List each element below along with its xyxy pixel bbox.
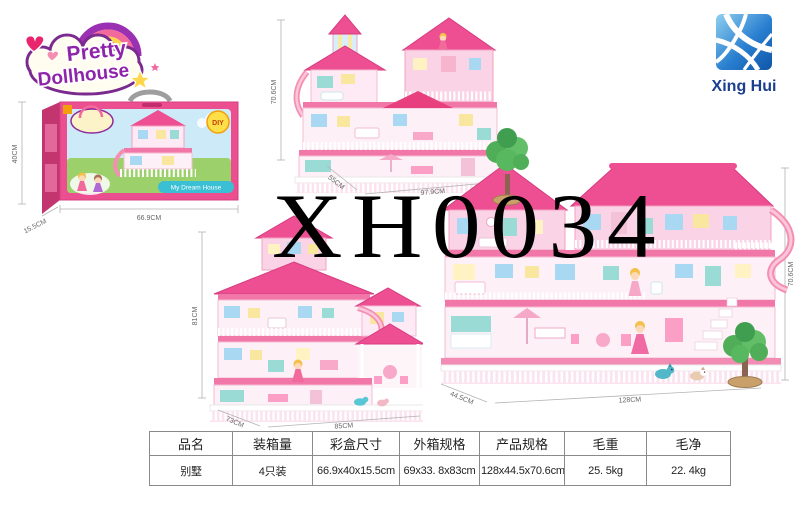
cell-color-box-size: 66.9x40x15.5cm	[313, 456, 400, 486]
cell-gross-weight: 25. 5kg	[565, 456, 647, 486]
cell-carton-size: 69x33. 8x83cm	[400, 456, 480, 486]
pretty-dollhouse-logo: Pretty Dollhouse	[12, 6, 167, 101]
xing-hui-logo: Xing Hui	[700, 12, 788, 98]
box-art: DIY My Dream House	[42, 92, 238, 214]
diy-badge-label: DIY	[212, 120, 224, 127]
cell-product-size: 128x44.5x70.6cm	[480, 456, 565, 486]
house-right-height-label: 70.6CM	[788, 262, 795, 287]
house-right-width-label: 128CM	[618, 396, 641, 404]
box-width-label: 66.9CM	[137, 215, 162, 222]
header-carton-size: 外箱规格	[400, 432, 480, 456]
box-tagline: My Dream House	[171, 185, 222, 192]
box-height-dimension	[18, 102, 26, 204]
spec-table-data-row: 别墅 4只装 66.9x40x15.5cm 69x33. 8x83cm 128x…	[150, 456, 731, 486]
header-net-weight: 毛净	[647, 432, 731, 456]
house-right-depth-label: 44.5CM	[449, 391, 475, 407]
house-top-height-label: 70.6CM	[271, 80, 278, 105]
house-right-bottom-dimensions	[441, 384, 761, 403]
header-color-box-size: 彩盒尺寸	[313, 432, 400, 456]
spec-table: 品名 装箱量 彩盒尺寸 外箱规格 产品规格 毛重 毛净 别墅 4只装 66.9x…	[149, 431, 731, 486]
header-gross-weight: 毛重	[565, 432, 647, 456]
company-name: Xing Hui	[712, 78, 777, 95]
cell-packing-qty: 4只装	[233, 456, 313, 486]
house-left-width-label: 85CM	[334, 422, 353, 430]
spec-table-header-row: 品名 装箱量 彩盒尺寸 外箱规格 产品规格 毛重 毛净	[150, 432, 731, 456]
house-left-height-label: 81CM	[192, 307, 199, 326]
cell-product-name: 别墅	[150, 456, 233, 486]
model-number-watermark: XH0034	[272, 180, 665, 272]
xing-hui-mark-icon	[716, 14, 772, 70]
header-product-name: 品名	[150, 432, 233, 456]
cell-net-weight: 22. 4kg	[647, 456, 731, 486]
box-depth-label: 15.5CM	[23, 218, 48, 235]
header-packing-qty: 装箱量	[233, 432, 313, 456]
box-height-label: 40CM	[12, 145, 19, 164]
product-sheet: Pretty Dollhouse Xing Hui 40CM	[0, 0, 800, 508]
house-left-height-dimension	[198, 232, 206, 398]
house-top-height-dimension	[277, 20, 285, 160]
header-product-size: 产品规格	[480, 432, 565, 456]
